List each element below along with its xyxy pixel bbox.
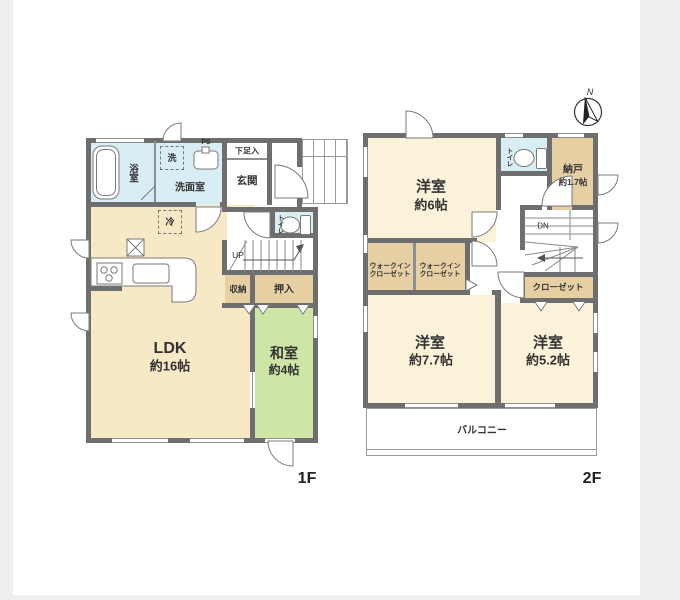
toilet-tank-1f bbox=[301, 216, 311, 235]
washitsu-door-arc bbox=[268, 441, 293, 466]
window-swing-arc bbox=[71, 313, 89, 331]
label-washer: 洗 bbox=[167, 153, 176, 163]
label-nando-size: 約1.7帖 bbox=[559, 178, 588, 188]
kitchen-sink-icon bbox=[133, 264, 169, 283]
washbasin-tap bbox=[202, 147, 209, 153]
wic-door-triangle bbox=[466, 279, 477, 291]
label-dn: DN bbox=[537, 221, 549, 230]
label-wic1-line2: クローゼット bbox=[370, 271, 411, 278]
floorplan-symbols-layer bbox=[0, 0, 680, 600]
label-oshiire: 押入 bbox=[274, 284, 294, 296]
folding-door-chevron bbox=[257, 305, 269, 314]
label-shoe-cabinet: 下足入 bbox=[235, 146, 259, 155]
window-swing-arc bbox=[163, 123, 181, 141]
window-swing-arc bbox=[406, 111, 433, 138]
bedroom52-door-arc bbox=[498, 272, 524, 298]
stove-burner bbox=[106, 275, 112, 281]
label-compass-n: N bbox=[587, 87, 594, 97]
washroom-door-arc bbox=[196, 207, 221, 232]
window-swing-arc bbox=[598, 223, 618, 243]
label-ldk: LDK bbox=[154, 340, 187, 358]
bedroom77-door-arc bbox=[472, 241, 497, 266]
label-closet-2f: クローゼット bbox=[532, 283, 583, 293]
label-storage-1f: 収納 bbox=[229, 285, 246, 295]
stove-burner bbox=[111, 267, 117, 273]
folding-door-chevron bbox=[535, 302, 547, 311]
label-floor-2f: 2F bbox=[583, 470, 602, 488]
folding-door-chevron bbox=[297, 305, 309, 314]
label-wic1: ウォークイン クローゼット bbox=[370, 263, 411, 279]
bathtub-inner bbox=[97, 150, 116, 196]
label-bath: 浴室 bbox=[125, 164, 139, 183]
bedroom6-door-arc bbox=[472, 212, 497, 237]
label-bedroom52: 洋室 bbox=[533, 334, 563, 351]
toilet-tank-2f bbox=[537, 149, 547, 169]
toilet-bowl-2f bbox=[514, 150, 534, 167]
toilet-door-arc-1f bbox=[244, 212, 270, 238]
label-wic1-line1: ウォークイン bbox=[370, 263, 411, 270]
folding-door-chevron bbox=[243, 305, 255, 314]
compass-icon bbox=[572, 95, 604, 128]
label-bedroom77-size: 約7.7帖 bbox=[409, 354, 453, 369]
window-swing-arc bbox=[598, 175, 618, 195]
label-ps: PS bbox=[201, 139, 210, 147]
label-entrance: 玄関 bbox=[237, 175, 258, 187]
label-toilet-2f: トイレ bbox=[503, 147, 513, 167]
label-bedroom6: 洋室 bbox=[416, 178, 446, 195]
label-washroom: 洗面室 bbox=[175, 182, 205, 194]
stairs-up-arrow bbox=[243, 250, 300, 260]
label-fridge: 冷 bbox=[165, 217, 174, 227]
stairs-dn-arrowhead bbox=[537, 254, 545, 262]
label-bedroom77: 洋室 bbox=[415, 334, 445, 351]
label-bedroom6-size: 約6帖 bbox=[414, 199, 447, 214]
washbasin-icon bbox=[194, 151, 218, 169]
label-wic2-line2: クローゼット bbox=[420, 271, 461, 278]
label-ldk-size: 約16帖 bbox=[150, 360, 190, 375]
bath-folding-door bbox=[141, 186, 155, 200]
front-door-arc bbox=[275, 165, 308, 198]
stairs-up-arrowhead bbox=[296, 244, 304, 253]
window-swing-arc bbox=[71, 240, 89, 258]
stove-burner bbox=[101, 267, 107, 273]
label-floor-1f: 1F bbox=[298, 470, 317, 488]
label-up: UP bbox=[232, 251, 244, 261]
stairs-2f bbox=[525, 210, 593, 272]
label-wic2-line1: ウォークイン bbox=[420, 263, 461, 270]
floorplan-page: 浴室 洗 PS 洗面室 下足入 玄関 トイレ UP 冷 収納 押入 LDK 約1… bbox=[0, 0, 680, 600]
label-washitsu: 和室 bbox=[270, 345, 298, 361]
label-wic2: ウォークイン クローゼット bbox=[420, 263, 461, 279]
label-washitsu-size: 約4帖 bbox=[269, 364, 300, 378]
label-balcony: バルコニー bbox=[457, 425, 507, 437]
label-toilet-1f: トイレ bbox=[274, 214, 284, 234]
label-bedroom52-size: 約5.2帖 bbox=[526, 354, 570, 369]
label-nando: 納戸 bbox=[563, 164, 583, 176]
folding-door-chevron bbox=[573, 302, 585, 311]
